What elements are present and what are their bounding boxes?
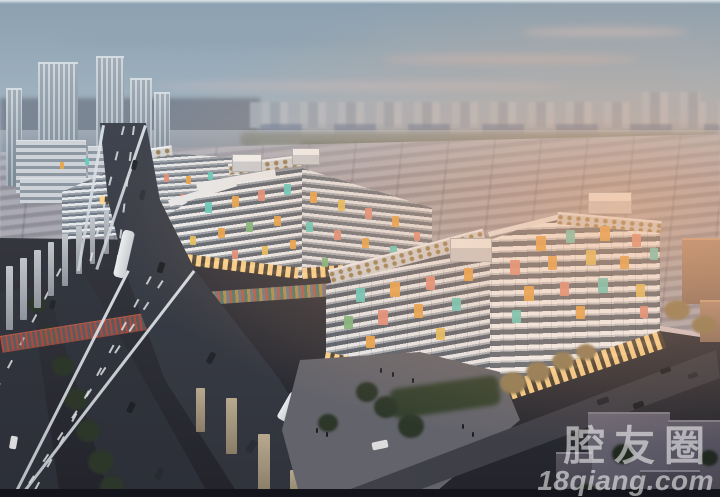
photo-top-edge [0,0,720,4]
watermark-brand: 腔友圈 [537,425,714,467]
watermark-site: 18qiang.com [537,467,714,494]
watermark: 腔友圈 18qiang.com [537,425,714,494]
architectural-rendering-photo: 腔友圈 18qiang.com [0,0,720,497]
